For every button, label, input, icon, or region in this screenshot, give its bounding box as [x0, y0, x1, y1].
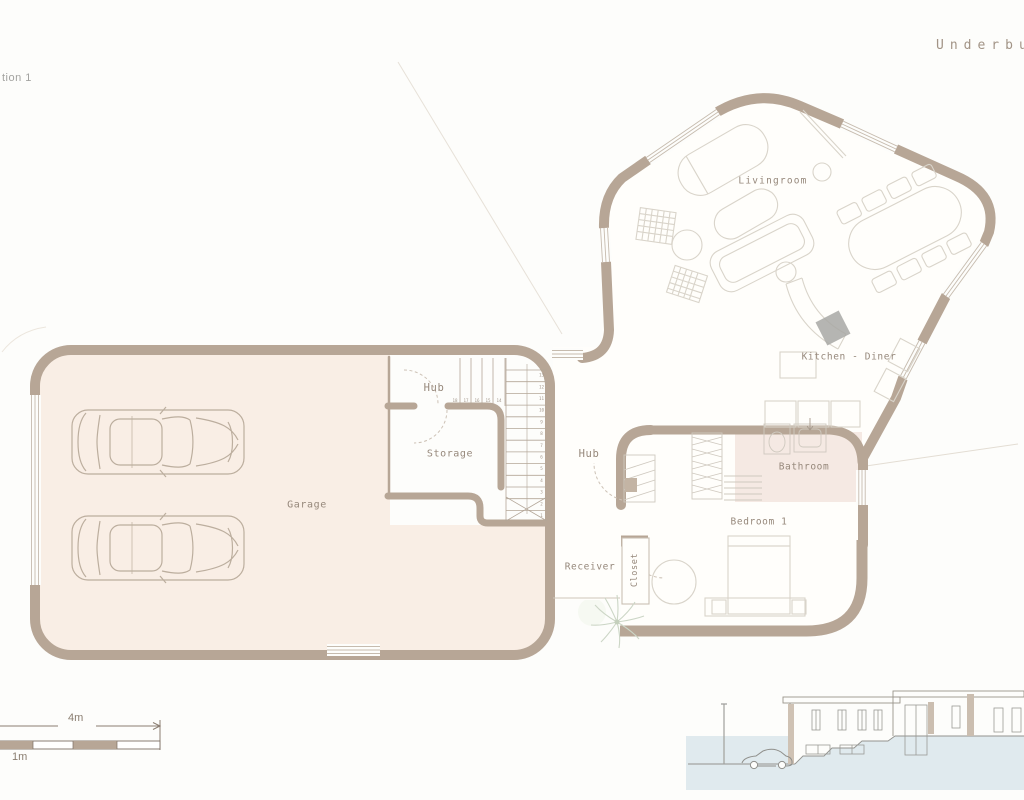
room-label-livingroom: Livingroom — [738, 176, 807, 187]
svg-text:12: 12 — [539, 384, 545, 389]
scale-bar — [0, 720, 160, 750]
room-label-storage: Storage — [427, 449, 473, 460]
svg-text:15: 15 — [485, 398, 491, 403]
room-label-garage: Garage — [287, 500, 327, 511]
scale-length-label: 4m — [68, 712, 83, 724]
svg-text:18: 18 — [452, 398, 458, 403]
room-label-hub-lower: Hub — [579, 448, 600, 460]
room-label-hub-upper: Hub — [424, 382, 445, 394]
floor-fills — [35, 93, 990, 655]
sheet-caption-left: tion 1 — [2, 72, 32, 84]
room-label-receiver: Receiver — [565, 562, 616, 573]
room-label-bedroom-1: Bedroom 1 — [731, 517, 788, 528]
svg-text:16: 16 — [474, 398, 480, 403]
elevation-section — [686, 691, 1024, 790]
svg-text:14: 14 — [496, 398, 502, 403]
room-label-closet: Closet — [630, 553, 640, 587]
floor-plan-drawing: 123456789101112131415161718 — [0, 0, 1024, 800]
svg-text:17: 17 — [463, 398, 469, 403]
scale-unit-label: 1m — [12, 751, 27, 763]
room-label-bathroom: Bathroom — [779, 462, 830, 473]
floor-plan-sheet: 123456789101112131415161718 — [0, 0, 1024, 800]
svg-text:13: 13 — [539, 373, 545, 378]
sheet-title: Underbui — [936, 38, 1024, 53]
svg-text:10: 10 — [539, 408, 545, 413]
svg-text:11: 11 — [539, 396, 545, 401]
room-label-kitchen-diner: Kitchen - Diner — [802, 352, 897, 363]
